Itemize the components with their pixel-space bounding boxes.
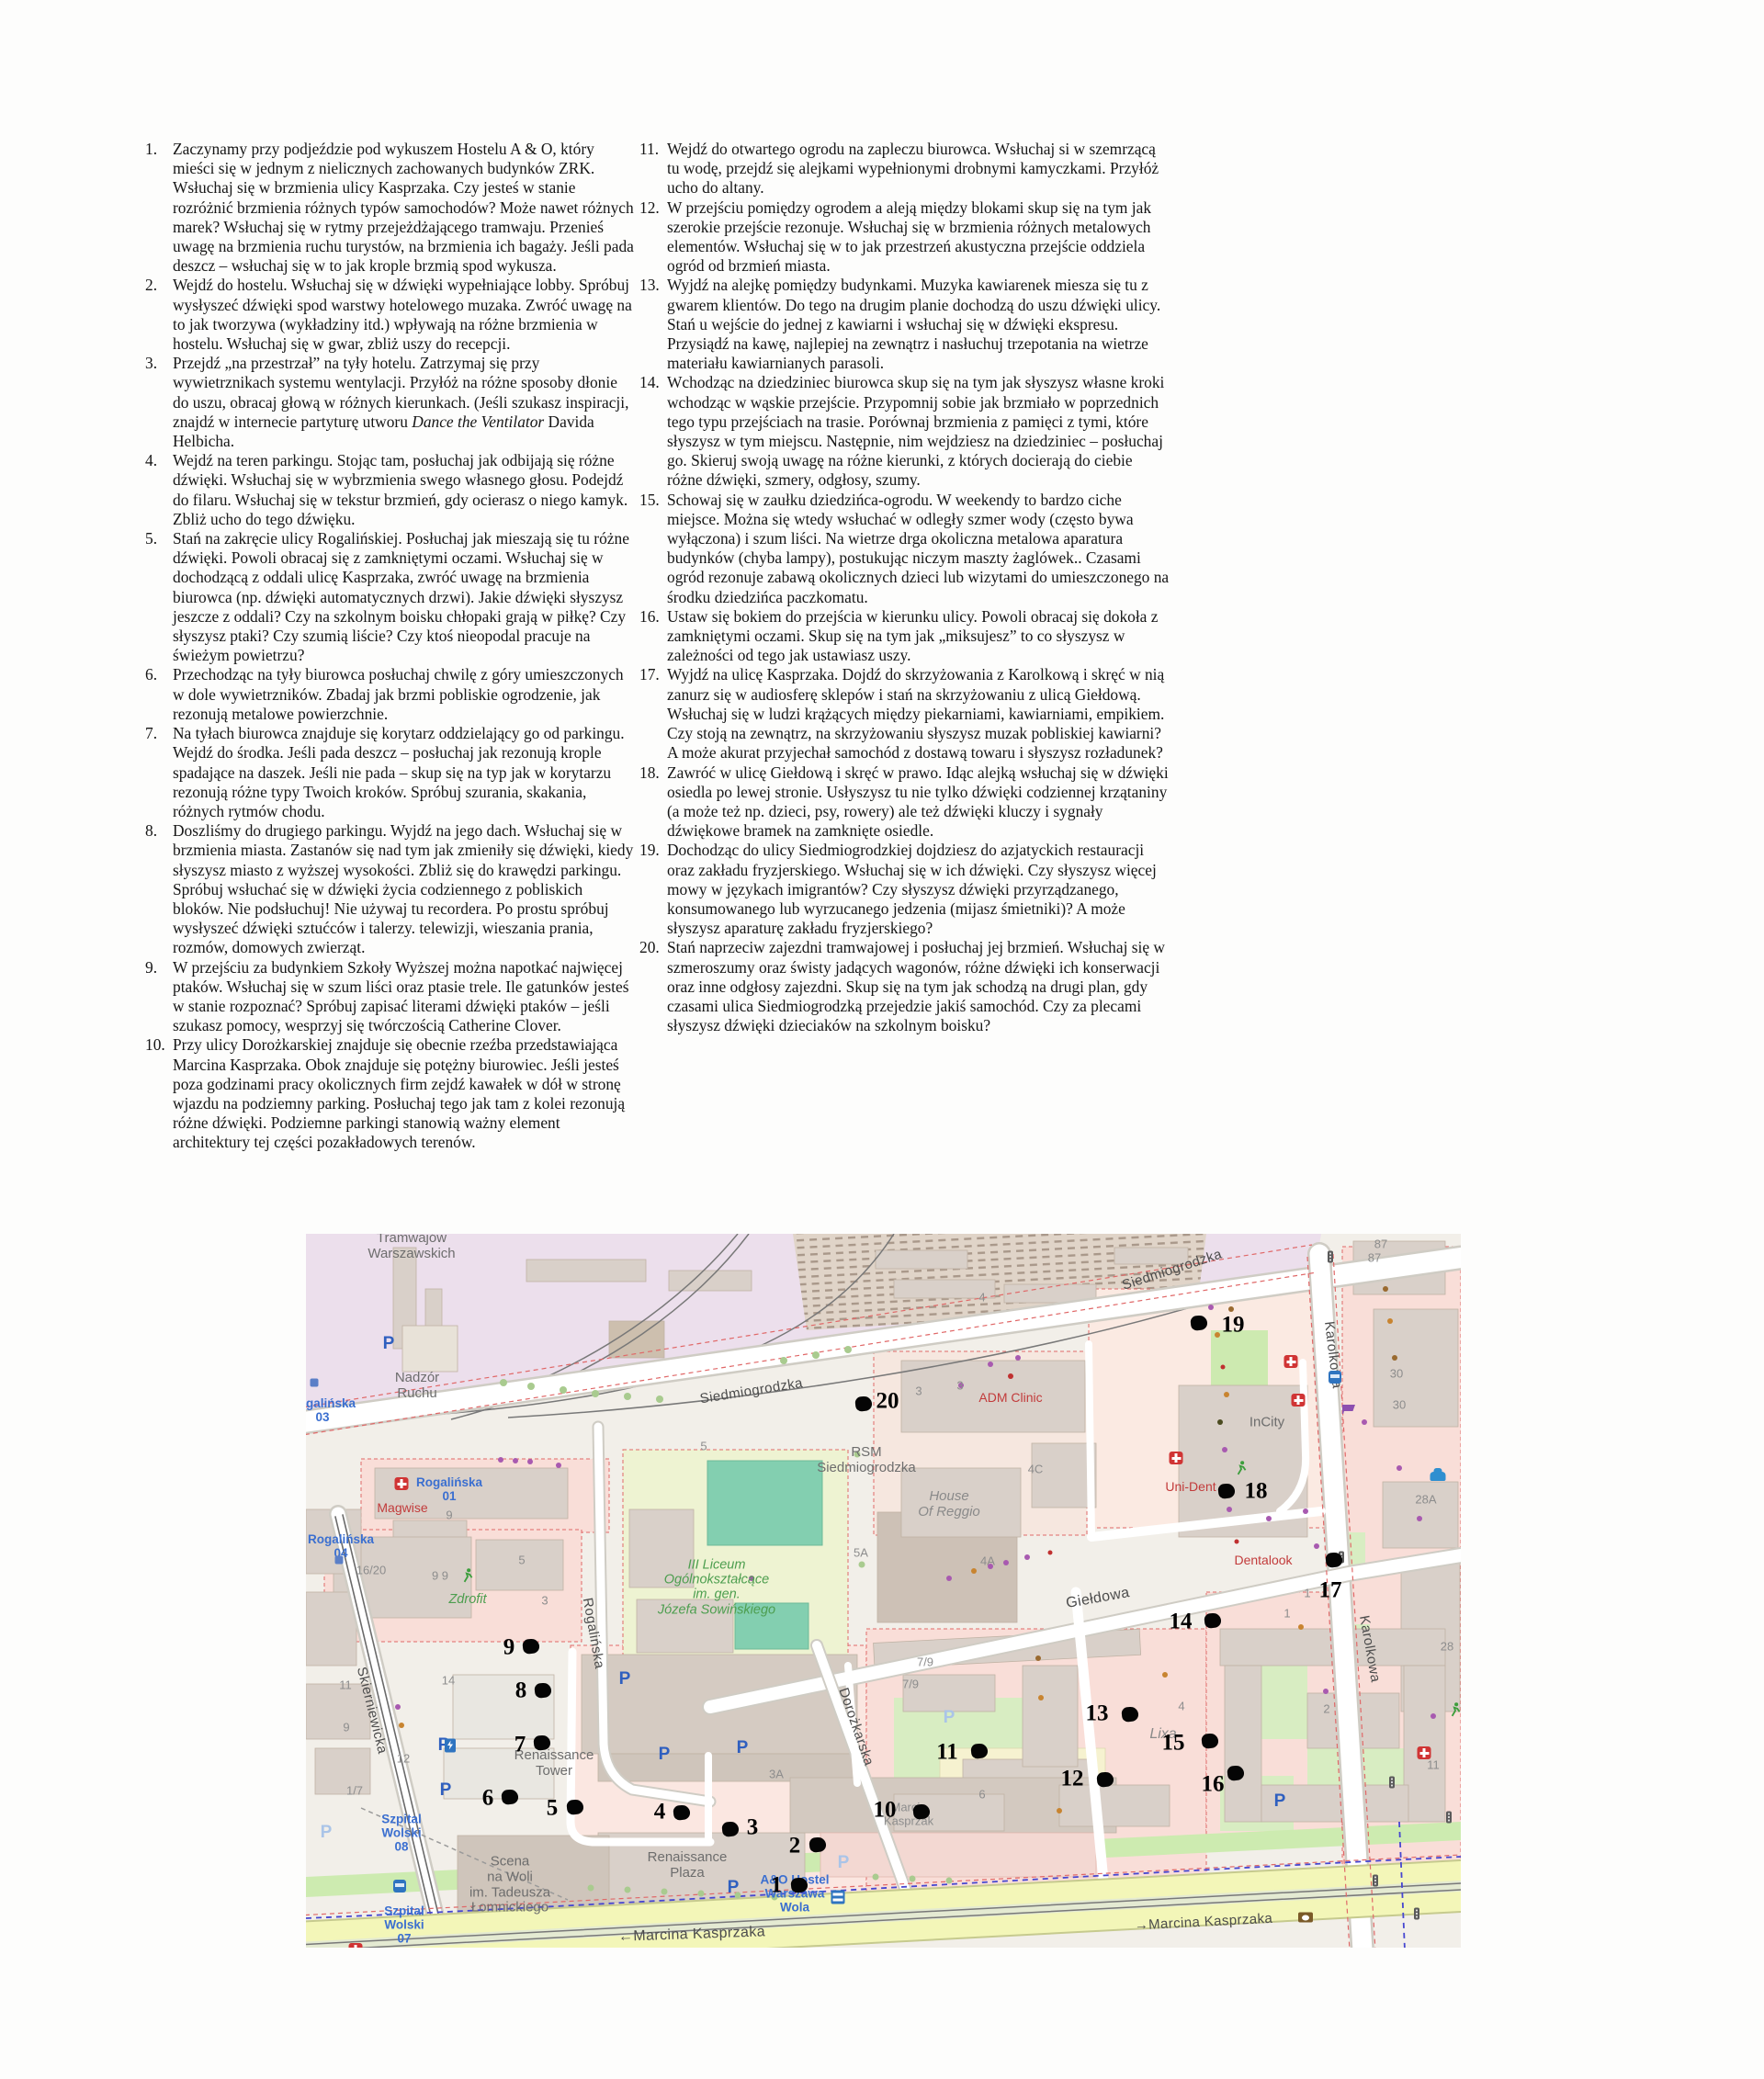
list-item: 10.Przy ulicy Dorożkarskiej znajduje się… <box>142 1035 634 1152</box>
text-segment: Wyjdź na alejkę pomiędzy budynkami. Muzy… <box>667 276 1160 372</box>
first-aid-icon <box>395 1477 409 1490</box>
item-number: 15. <box>637 491 667 510</box>
text-segment: Stań naprzeciw zajezdni tramwajowej i po… <box>667 938 1165 1034</box>
route-marker-number: 2 <box>789 1835 801 1858</box>
text-segment: Wejdź do otwartego ogrodu na zapleczu bi… <box>667 140 1159 197</box>
poi-dot <box>1015 1355 1021 1361</box>
poi-dot <box>1215 1332 1220 1338</box>
item-number: 5. <box>142 529 173 548</box>
poi-dot <box>1057 1808 1062 1813</box>
route-marker-number: 9 <box>503 1636 515 1659</box>
route-marker-number: 14 <box>1170 1610 1193 1633</box>
hostel-icon <box>831 1891 845 1904</box>
item-text: Schowaj się w zaułku dziedzińca-ogrodu. … <box>667 491 1171 607</box>
item-text: W przejściu pomiędzy ogrodem a aleją mię… <box>667 198 1171 277</box>
item-number: 11. <box>637 140 667 159</box>
parking-icon: P <box>383 1334 395 1354</box>
poi-dot <box>859 1562 865 1568</box>
poi-dot <box>624 1393 631 1400</box>
item-text: Wyjdź na ulicę Kasprzaka. Dojdź do skrzy… <box>667 665 1171 763</box>
poi-dot <box>1303 1508 1308 1514</box>
item-text: Przechodząc na tyły biurowca posłuchaj c… <box>173 665 634 724</box>
item-text: Wejdź na teren parkingu. Stojąc tam, pos… <box>173 451 634 529</box>
item-text: Przy ulicy Dorożkarskiej znajduje się ob… <box>173 1035 634 1152</box>
text-segment: Zaczynamy przy podjeździe pod wykuszem H… <box>173 140 634 275</box>
parking-icon: P <box>728 1878 740 1898</box>
poi-dot <box>873 1874 879 1881</box>
route-marker-number: 19 <box>1222 1314 1245 1337</box>
poi-dot <box>527 1459 533 1464</box>
item-text: Stań na zakręcie ulicy Rogalińskiej. Pos… <box>173 529 634 665</box>
poi-dot <box>527 1383 535 1390</box>
item-text: Wejdź do hostelu. Wsłuchaj się w dźwięki… <box>173 276 634 354</box>
first-aid-icon <box>1170 1452 1183 1464</box>
poi-dot <box>946 1878 953 1884</box>
text-segment: Ustaw się bokiem do przejścia w kierunku… <box>667 607 1158 664</box>
poi-dot <box>946 1576 952 1581</box>
list-item: 6.Przechodząc na tyły biurowca posłuchaj… <box>142 665 634 724</box>
item-text: Dochodząc do ulicy Siedmiogrodzkiej dojd… <box>667 841 1171 938</box>
traffic-light-icon <box>1389 1777 1395 1789</box>
item-number: 16. <box>637 607 667 627</box>
parking-icon: P <box>737 1738 749 1758</box>
poi-dot <box>625 1887 631 1893</box>
poi-dot <box>780 1357 787 1364</box>
bus-stop-icon <box>393 1880 406 1893</box>
item-text: Ustaw się bokiem do przejścia w kierunku… <box>667 607 1171 666</box>
traffic-light-icon <box>1328 1251 1333 1263</box>
poi-dot <box>556 1463 561 1468</box>
list-item: 20. Stań naprzeciw zajezdni tramwajowej … <box>637 938 1171 1035</box>
poi-dot <box>988 1564 993 1569</box>
route-marker-number: 5 <box>547 1797 559 1820</box>
poi-dot <box>1208 1305 1214 1310</box>
poi-dot <box>1430 1713 1436 1719</box>
map-base-layer <box>306 1234 1461 1948</box>
poi-dot <box>1392 1355 1397 1361</box>
item-text: Na tyłach biurowca znajduje się korytarz… <box>173 724 634 821</box>
poi-dot <box>1024 1554 1030 1560</box>
item-number: 6. <box>142 665 173 684</box>
text-segment: Schowaj się w zaułku dziedzińca-ogrodu. … <box>667 491 1169 606</box>
route-marker-number: 16 <box>1202 1773 1225 1796</box>
list-item: 4.Wejdź na teren parkingu. Stojąc tam, p… <box>142 451 634 529</box>
poi-dot <box>656 1395 663 1403</box>
route-marker-number: 18 <box>1245 1480 1268 1503</box>
route-marker-number: 1 <box>771 1874 783 1897</box>
poi-dot <box>854 1452 861 1458</box>
first-aid-icon <box>349 1943 363 1948</box>
list-item: 16.Ustaw się bokiem do przejścia w kieru… <box>637 607 1171 666</box>
poi-dot <box>1228 1306 1234 1312</box>
bus-stop-icon <box>1329 1371 1341 1384</box>
text-segment: Przy ulicy Dorożkarskiej znajduje się ob… <box>173 1035 625 1151</box>
item-number: 19. <box>637 841 667 860</box>
text-segment: Wyjdź na ulicę Kasprzaka. Dojdź do skrzy… <box>667 665 1164 762</box>
parking-icon: P <box>659 1745 671 1765</box>
list-item: 2.Wejdź do hostelu. Wsłuchaj się w dźwię… <box>142 276 634 354</box>
item-number: 18. <box>637 763 667 783</box>
list-item: 9.W przejściu za budynkiem Szkoły Wyższe… <box>142 958 634 1036</box>
poi-dot <box>958 1383 964 1388</box>
poi-dot <box>1227 1507 1232 1512</box>
item-text: Zaczynamy przy podjeździe pod wykuszem H… <box>173 140 634 276</box>
parking-icon: P <box>321 1823 333 1843</box>
first-aid-icon <box>1292 1394 1306 1407</box>
item-number: 10. <box>142 1035 173 1055</box>
poi-dot <box>1417 1516 1422 1521</box>
item-text: W przejściu za budynkiem Szkoły Wyższej … <box>173 958 634 1036</box>
item-number: 4. <box>142 451 173 470</box>
instructions-column-left: 1.Zaczynamy przy podjeździe pod wykuszem… <box>142 140 634 1153</box>
route-marker-number: 15 <box>1162 1732 1185 1755</box>
item-number: 8. <box>142 821 173 841</box>
poi-dot <box>399 1723 404 1728</box>
poi-dot <box>395 1704 401 1710</box>
poi-dot <box>988 1362 993 1367</box>
list-item: 11.Wejdź do otwartego ogrodu na zapleczu… <box>637 140 1171 198</box>
item-text: Stań naprzeciw zajezdni tramwajowej i po… <box>667 938 1171 1035</box>
poi-dot <box>1383 1286 1388 1292</box>
text-segment: Przechodząc na tyły biurowca posłuchaj c… <box>173 665 624 722</box>
poi-dot <box>1035 1655 1041 1661</box>
tram-stop-icon <box>311 1379 319 1387</box>
tram-stop-icon <box>335 1556 344 1565</box>
route-marker-number: 12 <box>1061 1768 1084 1791</box>
item-number: 1. <box>142 140 173 159</box>
list-item: 18.Zawróć w ulicę Giełdową i skręć w pra… <box>637 763 1171 842</box>
poi-dot <box>1038 1695 1044 1700</box>
poi-dot <box>1323 1689 1329 1694</box>
item-text: Wejdź do otwartego ogrodu na zapleczu bi… <box>667 140 1171 198</box>
text-segment: Wchodząc na dziedziniec biurowca skup si… <box>667 373 1164 489</box>
poi-dot <box>749 1576 754 1581</box>
item-number: 2. <box>142 276 173 295</box>
poi-dot <box>1162 1672 1168 1678</box>
item-number: 20. <box>637 938 667 957</box>
poi-dot <box>1003 1560 1009 1565</box>
poi-dot <box>812 1351 820 1359</box>
poi-dot <box>1008 1373 1013 1379</box>
item-text: Wyjdź na alejkę pomiędzy budynkami. Muzy… <box>667 276 1171 373</box>
parking-icon: P <box>619 1669 631 1689</box>
poi-dot <box>1217 1419 1223 1425</box>
item-text: Przejdź „na przestrzał” na tyły hotelu. … <box>173 354 634 451</box>
list-item: 1.Zaczynamy przy podjeździe pod wykuszem… <box>142 140 634 276</box>
text-segment: W przejściu za budynkiem Szkoły Wyższej … <box>173 958 628 1035</box>
poi-dot <box>1048 1551 1053 1555</box>
traffic-light-icon <box>1446 1812 1452 1824</box>
poi-dot <box>1222 1447 1227 1452</box>
route-marker-number: 10 <box>874 1799 897 1822</box>
text-segment: Na tyłach biurowca znajduje się korytarz… <box>173 724 625 820</box>
list-item: 14.Wchodząc na dziedziniec biurowca skup… <box>637 373 1171 490</box>
text-segment: Wejdź do hostelu. Wsłuchaj się w dźwięki… <box>173 276 632 353</box>
text-segment: Zawróć w ulicę Giełdową i skręć w prawo.… <box>667 763 1169 841</box>
text-segment: Wejdź na teren parkingu. Stojąc tam, pos… <box>173 451 628 528</box>
list-item: 7.Na tyłach biurowca znajduje się koryta… <box>142 724 634 821</box>
route-marker-number: 6 <box>482 1787 494 1810</box>
school-pitch-small <box>735 1603 808 1649</box>
atm-icon <box>1298 1913 1313 1923</box>
item-number: 3. <box>142 354 173 373</box>
first-aid-icon <box>1418 1746 1431 1759</box>
item-number: 17. <box>637 665 667 684</box>
text-segment: Dochodząc do ulicy Siedmiogrodzkiej dojd… <box>667 841 1157 937</box>
poi-dot <box>1224 1392 1229 1397</box>
poi-dot <box>1314 1543 1319 1549</box>
scanned-soundwalk-page: { "document": { "columns": [ {"side":"le… <box>0 0 1764 2079</box>
list-item: 8.Doszliśmy do drugiego parkingu. Wyjdź … <box>142 821 634 957</box>
poi-dot <box>1387 1318 1393 1324</box>
poi-dot <box>500 1379 507 1386</box>
traffic-light-icon <box>1373 1875 1378 1887</box>
poi-dot <box>588 1885 594 1892</box>
poi-dot <box>1396 1465 1402 1471</box>
text-segment: Stań na zakręcie ulicy Rogalińskiej. Pos… <box>173 529 629 664</box>
ev-charging-icon <box>445 1739 456 1753</box>
list-item: 15.Schowaj się w zaułku dziedzińca-ogrod… <box>637 491 1171 607</box>
school-pitch-large <box>707 1461 822 1545</box>
text-segment: Doszliśmy do drugiego parkingu. Wyjdź na… <box>173 821 633 956</box>
route-marker-number: 8 <box>515 1679 527 1702</box>
list-item: 3.Przejdź „na przestrzał” na tyły hotelu… <box>142 354 634 451</box>
route-marker-number: 7 <box>514 1734 526 1757</box>
poi-dot <box>971 1568 977 1574</box>
soundwalk-route-map: SiedmiogrodzkaSiedmiogrodzkaKarolkowaKar… <box>306 1234 1461 1948</box>
poi-dot <box>1221 1365 1226 1370</box>
route-marker-number: 11 <box>936 1741 958 1764</box>
poi-dot <box>513 1458 518 1463</box>
taxi-icon <box>1430 1472 1446 1481</box>
parking-icon: P <box>1274 1791 1286 1812</box>
parking-icon: P <box>440 1780 452 1801</box>
poi-dot <box>844 1346 852 1353</box>
poi-dot <box>698 1891 705 1897</box>
poi-dot <box>560 1386 567 1394</box>
traffic-light-icon <box>1414 1908 1419 1920</box>
item-number: 13. <box>637 276 667 295</box>
parking-icon: P <box>944 1708 955 1728</box>
poi-dot <box>1266 1516 1272 1521</box>
route-marker-number: 20 <box>876 1390 899 1413</box>
first-aid-icon <box>1284 1355 1298 1368</box>
poi-dot <box>1298 1624 1304 1630</box>
item-text: Zawróć w ulicę Giełdową i skręć w prawo.… <box>667 763 1171 842</box>
poi-dot <box>498 1457 503 1463</box>
list-item: 12.W przejściu pomiędzy ogrodem a aleją … <box>637 198 1171 277</box>
item-number: 12. <box>637 198 667 218</box>
poi-dot <box>592 1390 599 1397</box>
route-marker-number: 13 <box>1086 1702 1109 1725</box>
parking-icon: P <box>838 1853 850 1873</box>
item-text: Wchodząc na dziedziniec biurowca skup si… <box>667 373 1171 490</box>
route-marker-number: 4 <box>654 1801 666 1824</box>
poi-dot <box>661 1889 668 1895</box>
item-number: 14. <box>637 373 667 392</box>
list-item: 13.Wyjdź na alejkę pomiędzy budynkami. M… <box>637 276 1171 373</box>
poi-dot <box>910 1876 916 1882</box>
item-number: 9. <box>142 958 173 977</box>
item-text: Doszliśmy do drugiego parkingu. Wyjdź na… <box>173 821 634 957</box>
route-marker-number: 3 <box>747 1816 759 1839</box>
poi-dot <box>1362 1419 1367 1425</box>
route-marker-number: 17 <box>1319 1579 1342 1602</box>
list-item: 17.Wyjdź na ulicę Kasprzaka. Dojdź do sk… <box>637 665 1171 763</box>
list-item: 19. Dochodząc do ulicy Siedmiogrodzkiej … <box>637 841 1171 938</box>
text-segment: Dance the Ventilator <box>412 412 544 431</box>
item-number: 7. <box>142 724 173 743</box>
instructions-column-right: 11.Wejdź do otwartego ogrodu na zapleczu… <box>637 140 1171 1035</box>
list-item: 5.Stań na zakręcie ulicy Rogalińskiej. P… <box>142 529 634 665</box>
text-segment: W przejściu pomiędzy ogrodem a aleją mię… <box>667 198 1151 276</box>
poi-dot <box>1235 1540 1239 1544</box>
